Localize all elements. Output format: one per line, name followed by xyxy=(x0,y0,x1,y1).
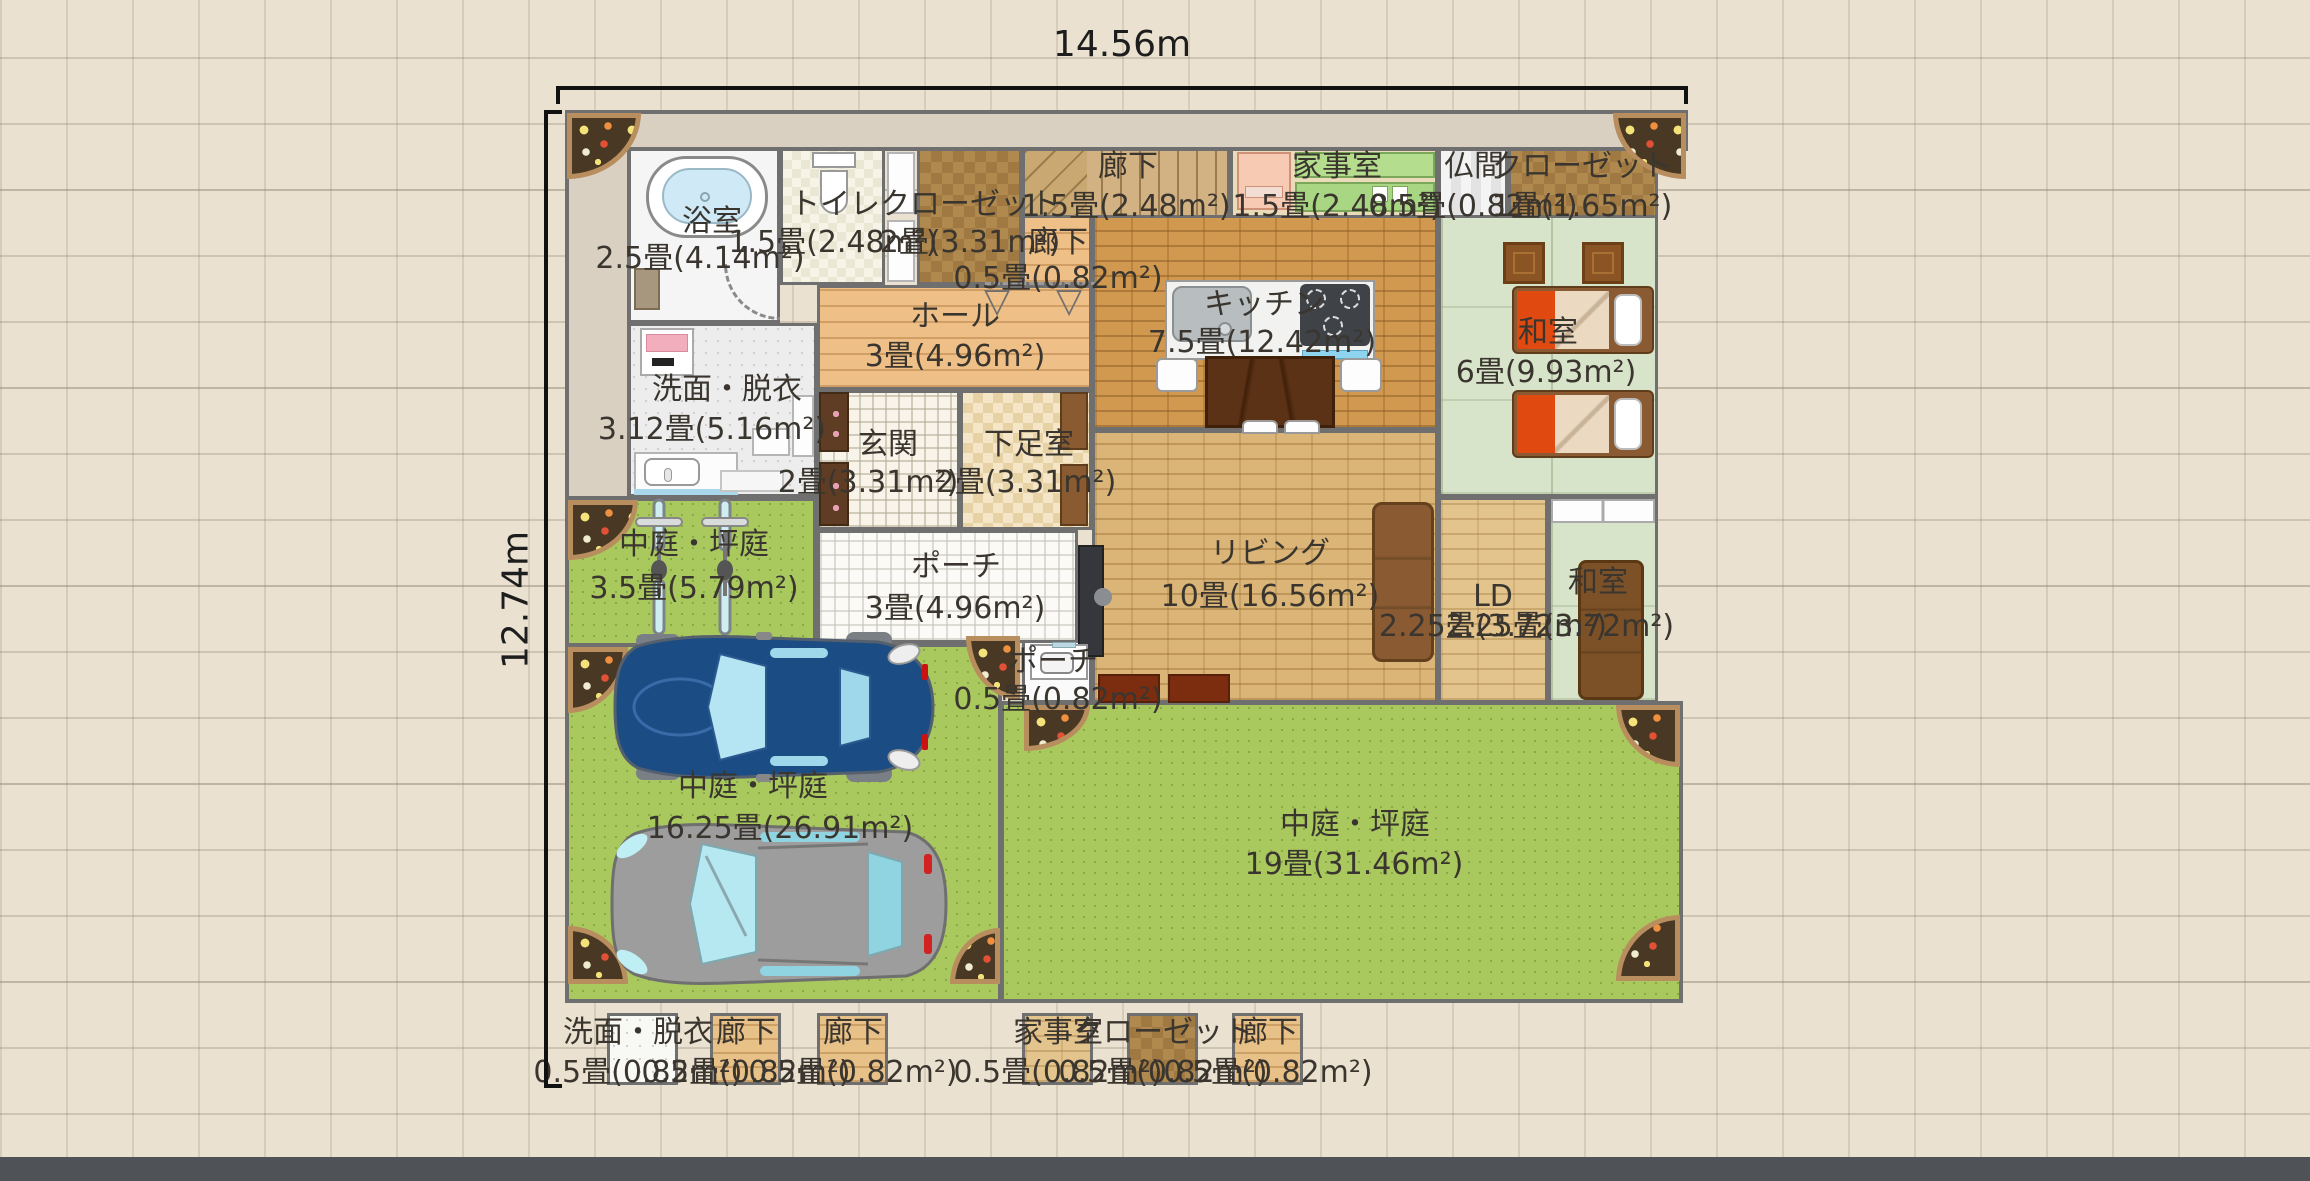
exterior-strip-top xyxy=(565,110,1688,151)
bathtub-drain xyxy=(700,192,710,202)
room-area-porch: 3畳(4.96m²) xyxy=(865,592,1046,626)
room-area-kitchen: 7.5畳(12.42m²) xyxy=(1148,326,1376,360)
zabuton-cushion-inner xyxy=(1513,252,1535,274)
washing-machine-lid xyxy=(646,334,688,352)
room-area-closet-right: 1畳(1.65m²) xyxy=(1492,190,1673,224)
room-label-porch: ポーチ xyxy=(911,550,1001,584)
room-label-garden-side: 中庭・坪庭 xyxy=(619,528,769,562)
floor-mat[interactable] xyxy=(1168,674,1230,703)
tv-speaker xyxy=(1094,588,1112,606)
room-area-hall: 3畳(4.96m²) xyxy=(865,340,1046,374)
washroom-basin xyxy=(644,458,700,486)
dimension-height-tick-top xyxy=(544,110,562,114)
legend-label: 廊下 xyxy=(716,1016,776,1050)
dining-chair[interactable] xyxy=(1242,420,1278,434)
room-label-washitsu-small: 和室 xyxy=(1568,566,1628,600)
futon-head xyxy=(1517,395,1555,453)
room-label-utility: 家事室 xyxy=(1292,150,1382,184)
room-area-garden-side: 3.5畳(5.79m²) xyxy=(589,572,798,606)
room-area-garden-drive: 16.25畳(26.91m²) xyxy=(647,812,913,846)
legend-label: クローゼット xyxy=(1073,1016,1253,1050)
dimension-width-tick-left xyxy=(556,86,560,104)
room-area-corridor-small: 0.5畳(0.82m²) xyxy=(953,262,1162,296)
dimension-width-label: 14.56m xyxy=(1053,24,1191,65)
room-label-living: リビング xyxy=(1210,537,1330,571)
room-label-porch-small: ポーチ xyxy=(1008,645,1098,679)
legend-area: 0.5畳(0.82m²) xyxy=(1163,1056,1372,1090)
room-label-entrance: 玄関 xyxy=(858,428,918,462)
room-area-porch-small: 0.5畳(0.82m²) xyxy=(953,683,1162,717)
bottom-bar xyxy=(0,1157,2310,1181)
bicycles[interactable] xyxy=(632,492,764,642)
car-blue[interactable] xyxy=(608,630,940,784)
washroom-basin-drain xyxy=(664,468,672,482)
legend-label: 廊下 xyxy=(1238,1016,1298,1050)
room-area-washroom: 3.12畳(5.16m²) xyxy=(598,413,826,447)
room-label-toilet: トイレ xyxy=(790,188,880,222)
stove-burner xyxy=(1340,289,1360,309)
dimension-width-line xyxy=(556,86,1688,90)
futon-pillow xyxy=(1614,294,1642,346)
room-label-corridor-small: 廊下 xyxy=(1028,226,1088,260)
dimension-height-tick-bottom xyxy=(544,1084,562,1088)
zabuton-cushion-inner xyxy=(1592,252,1614,274)
dining-chair[interactable] xyxy=(1340,358,1382,392)
closet-doors[interactable] xyxy=(1551,499,1655,523)
room-label-closet-right: クローゼット xyxy=(1492,150,1672,184)
room-area-corridor-stairs: 1.5畳(2.48m²) xyxy=(1021,190,1230,224)
room-porch[interactable] xyxy=(817,530,1078,643)
room-label-kitchen: キッチン xyxy=(1204,288,1324,322)
toilet-tank[interactable] xyxy=(812,152,856,168)
room-label-shoe: 下足室 xyxy=(984,428,1074,462)
room-label-washitsu-main: 和室 xyxy=(1518,316,1578,350)
dining-chair[interactable] xyxy=(1284,420,1320,434)
dining-chair[interactable] xyxy=(1156,358,1198,392)
room-label-washroom: 洗面・脱衣 xyxy=(652,373,802,407)
dimension-width-tick-right xyxy=(1684,86,1688,104)
room-label-hall: ホール xyxy=(910,300,1000,334)
legend-label: 洗面・脱衣 xyxy=(563,1016,713,1050)
dimension-height-label: 12.74m xyxy=(496,531,537,669)
dining-table[interactable] xyxy=(1205,356,1335,428)
room-area-garden-main: 19畳(31.46m²) xyxy=(1245,848,1464,882)
dimension-height-line xyxy=(544,110,548,1088)
room-area-shoe: 2畳(3.31m²) xyxy=(936,466,1117,500)
legend-label: 廊下 xyxy=(823,1016,883,1050)
room-area-washitsu-main: 6畳(9.93m²) xyxy=(1456,356,1637,390)
room-label-garden-main: 中庭・坪庭 xyxy=(1280,808,1430,842)
room-area-washitsu-small: 2.25畳(3.72m²) xyxy=(1446,610,1674,644)
washing-machine-slot xyxy=(652,358,674,366)
legend-area: 0.5畳(0.82m²) xyxy=(748,1056,957,1090)
room-label-garden-drive: 中庭・坪庭 xyxy=(678,770,828,804)
futon-pillow xyxy=(1614,398,1642,450)
room-area-entrance: 2畳(3.31m²) xyxy=(778,466,959,500)
room-label-corridor-stairs: 廊下 xyxy=(1098,150,1158,184)
exterior-strip-left xyxy=(565,148,631,500)
futon-duvet xyxy=(1555,395,1609,453)
room-area-living: 10畳(16.56m²) xyxy=(1161,580,1380,614)
washroom-mat xyxy=(720,470,784,492)
floorplan-canvas: { "plan": { "width_label": "14.56m", "he… xyxy=(0,0,2310,1181)
